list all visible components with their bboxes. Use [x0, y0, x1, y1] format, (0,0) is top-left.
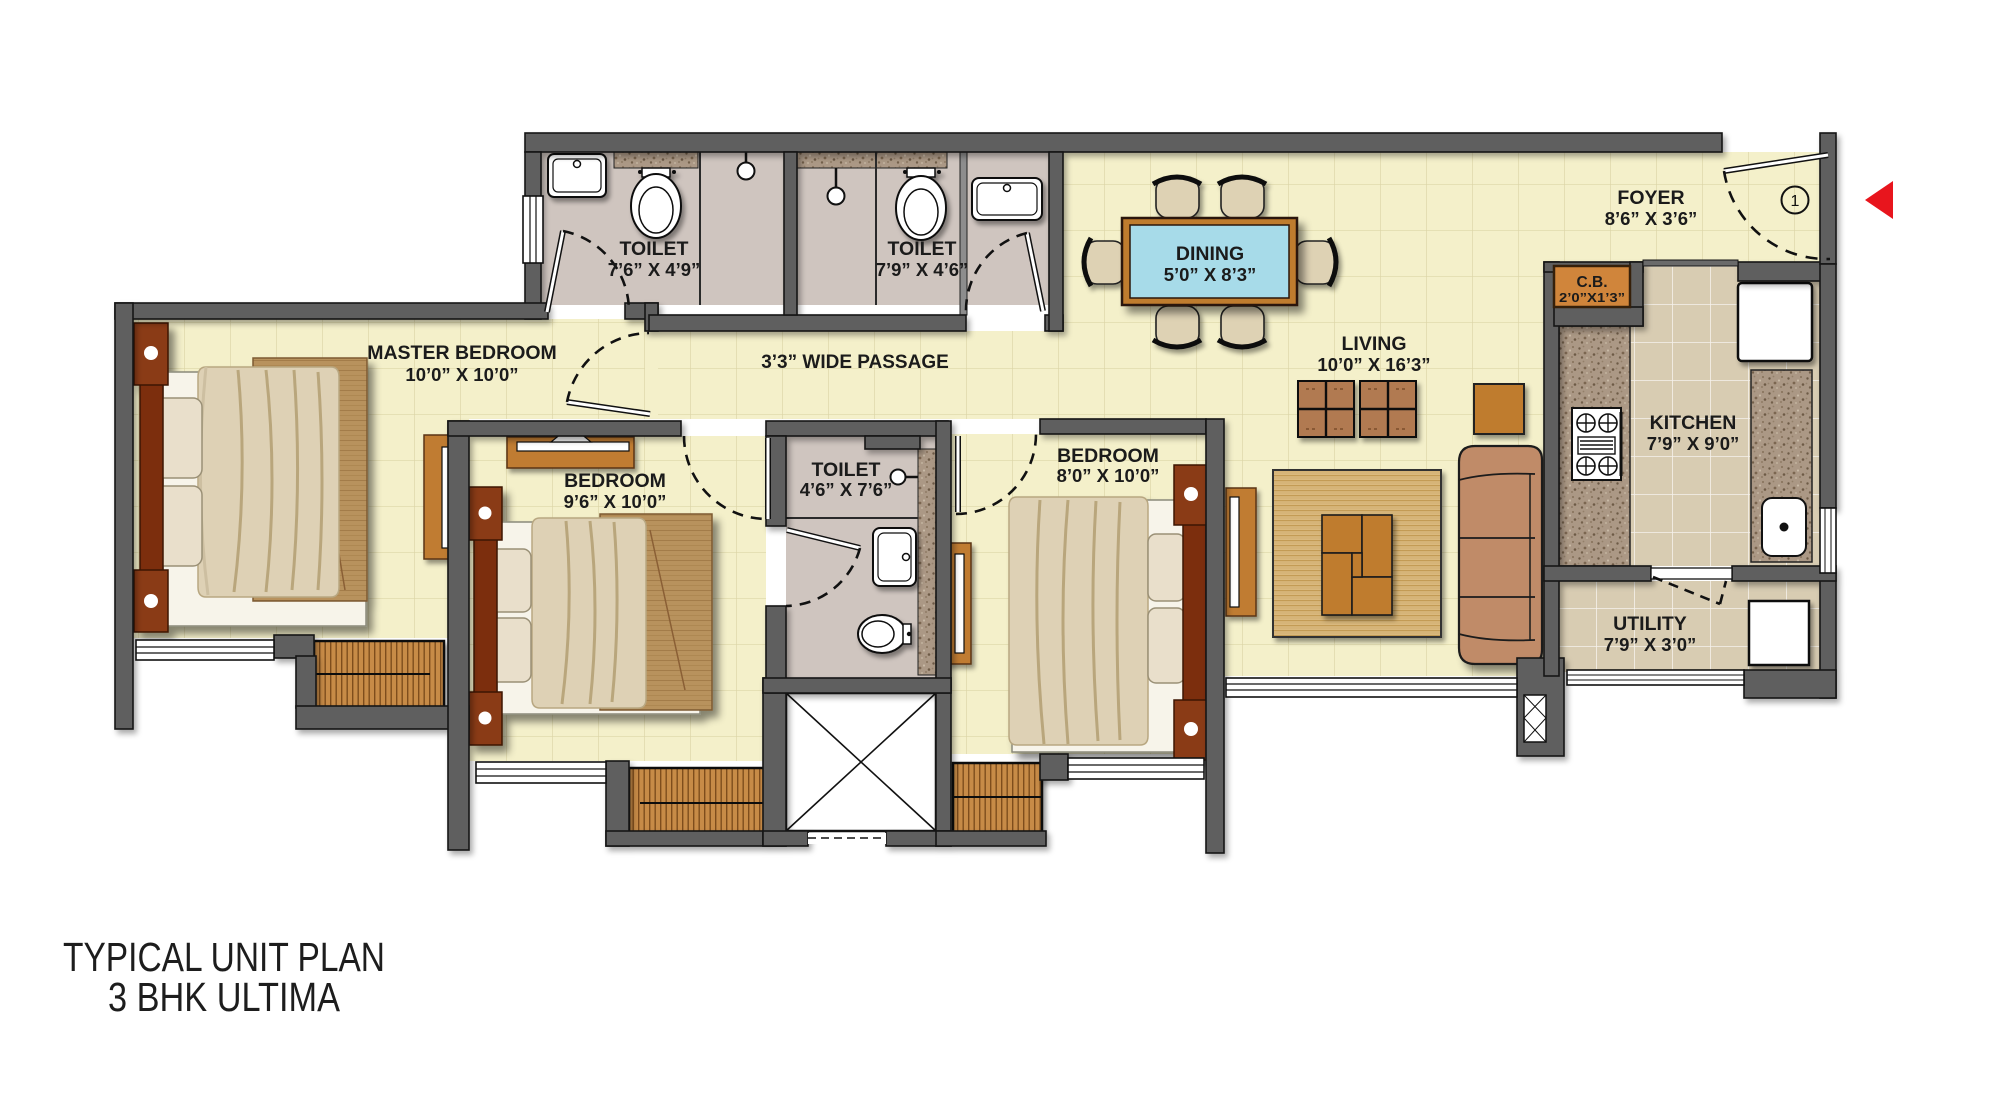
svg-text:KITCHEN: KITCHEN — [1650, 412, 1737, 434]
svg-text:BEDROOM: BEDROOM — [1057, 445, 1159, 467]
svg-text:4’6” X 7’6”: 4’6” X 7’6” — [800, 479, 893, 500]
svg-text:10’0” X 10’0”: 10’0” X 10’0” — [405, 364, 518, 385]
svg-text:FOYER: FOYER — [1617, 187, 1684, 209]
svg-text:8’6” X 3’6”: 8’6” X 3’6” — [1605, 208, 1698, 229]
svg-text:3 BHK ULTIMA: 3 BHK ULTIMA — [108, 974, 341, 1020]
svg-text:7’9” X 9’0”: 7’9” X 9’0” — [1647, 433, 1740, 454]
svg-text:TOILET: TOILET — [812, 459, 881, 481]
svg-text:C.B.: C.B. — [1577, 274, 1608, 291]
svg-text:UTILITY: UTILITY — [1613, 613, 1687, 635]
svg-text:MASTER BEDROOM: MASTER BEDROOM — [367, 342, 557, 364]
svg-text:TOILET: TOILET — [888, 238, 957, 260]
svg-text:5’0” X 8’3”: 5’0” X 8’3” — [1164, 264, 1257, 285]
svg-text:7’9” X 4’6”: 7’9” X 4’6” — [876, 259, 969, 280]
svg-text:1: 1 — [1791, 193, 1800, 210]
svg-text:8’0” X 10’0”: 8’0” X 10’0” — [1057, 465, 1160, 486]
svg-text:2’0”X1’3”: 2’0”X1’3” — [1559, 291, 1625, 305]
svg-text:7’9” X 3’0”: 7’9” X 3’0” — [1604, 634, 1697, 655]
svg-text:LIVING: LIVING — [1341, 333, 1406, 355]
svg-text:TOILET: TOILET — [620, 238, 689, 260]
svg-text:9’6” X 10’0”: 9’6” X 10’0” — [564, 491, 667, 512]
svg-text:BEDROOM: BEDROOM — [564, 470, 666, 492]
svg-text:DINING: DINING — [1176, 243, 1244, 265]
svg-text:3’3” WIDE PASSAGE: 3’3” WIDE PASSAGE — [761, 352, 949, 373]
svg-text:10’0” X 16’3”: 10’0” X 16’3” — [1317, 354, 1430, 375]
svg-text:7’6” X 4’9”: 7’6” X 4’9” — [608, 259, 701, 280]
